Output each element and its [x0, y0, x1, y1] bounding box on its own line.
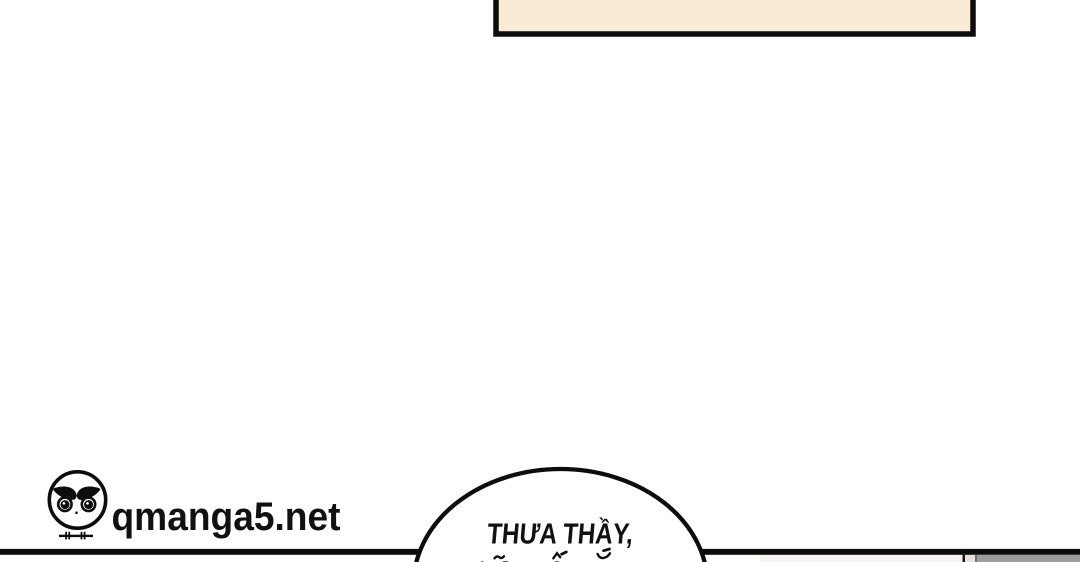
svg-text:THƯA THẦY,: THƯA THẦY, [486, 517, 635, 551]
svg-text:qmanga5.net: qmanga5.net [112, 495, 341, 539]
